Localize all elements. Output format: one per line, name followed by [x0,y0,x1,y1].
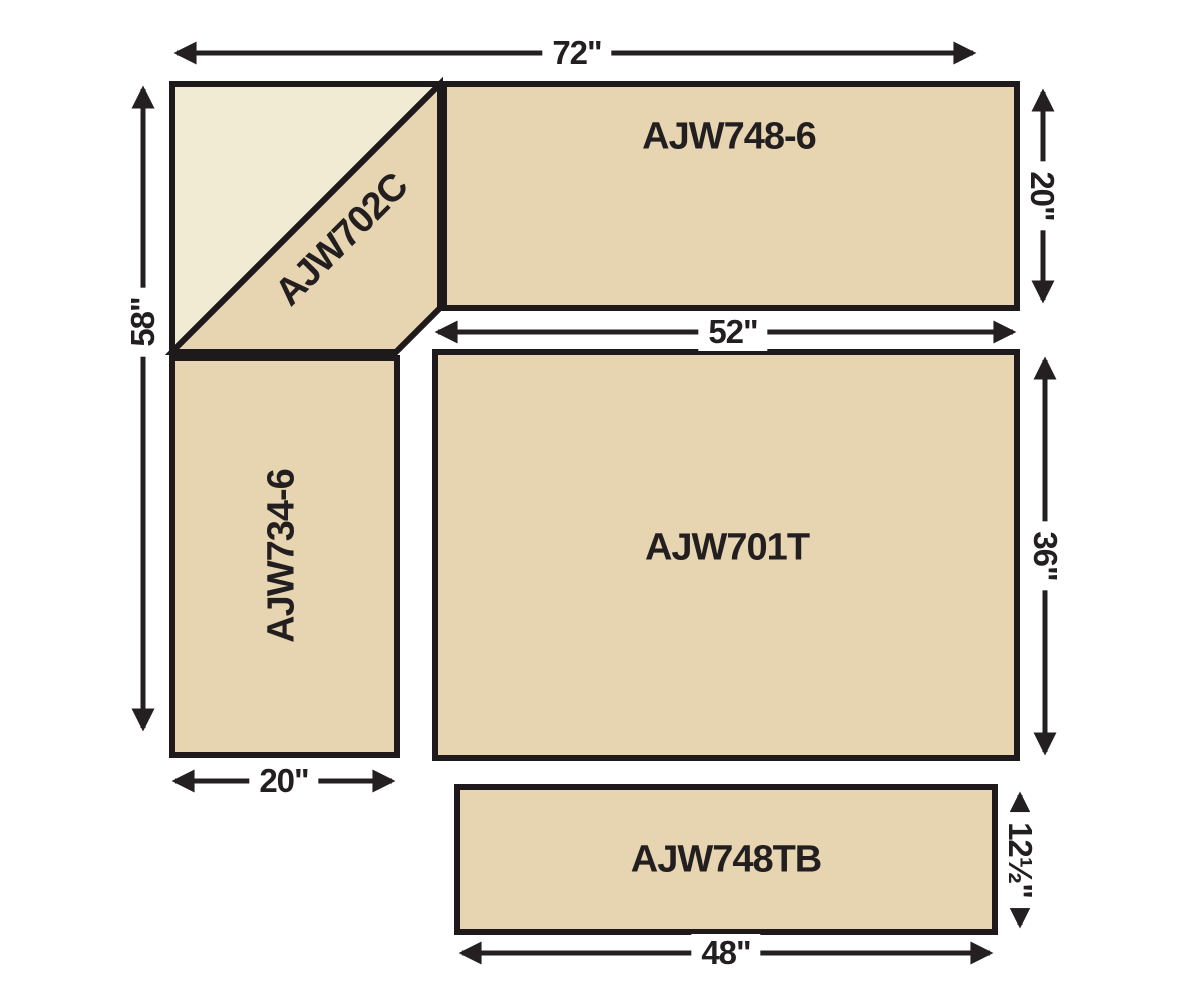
piece-label-ajw748tb: AJW748TB [631,839,822,882]
seating-layout-diagram: AJW702C AJW748-6 AJW734-6 AJW701T AJW748… [0,0,1200,1000]
dimension-label-36in: 36" [1026,521,1064,590]
dimension-label-48in: 48" [691,934,760,972]
dimension-label-20in-right: 20" [1023,161,1061,230]
piece-label-ajw748-6: AJW748-6 [642,116,816,159]
piece-label-ajw701t: AJW701T [645,527,809,570]
dimension-label-52in: 52" [698,313,767,351]
dimension-label-12half-in: 12½" [1001,812,1039,908]
dimension-label-58in: 58" [124,287,162,356]
dimension-label-72in: 72" [542,34,611,72]
piece-label-ajw734-6: AJW734-6 [261,469,304,643]
dimension-label-20in-bottom: 20" [249,762,318,800]
